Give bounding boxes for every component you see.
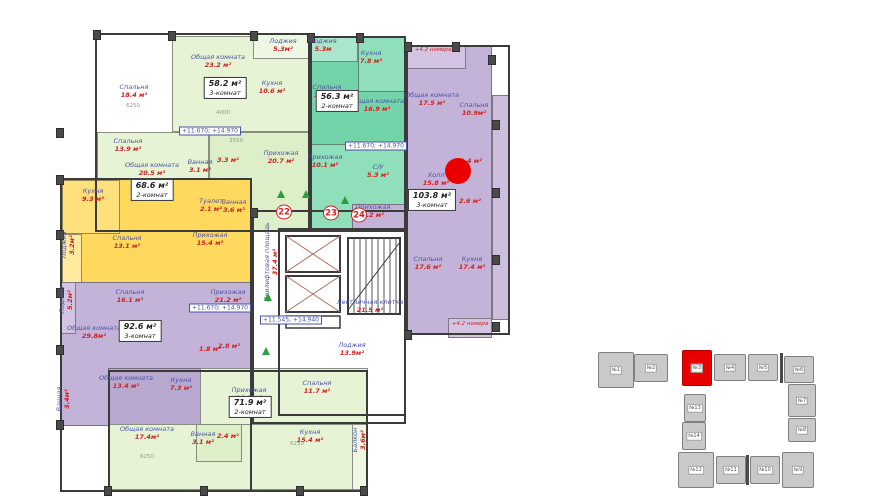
- apartment-area-badge: 68.6 м²2-комнат: [131, 179, 174, 201]
- dimension-label: 4000: [216, 110, 230, 116]
- room-area: 10.1 м²: [308, 162, 343, 170]
- selected-unit-dot: [445, 158, 471, 184]
- badge-area: 58.2 м²: [209, 79, 242, 89]
- elevation-badge: +11.670; +14.970: [345, 142, 407, 151]
- room-area: 15.4 м²: [297, 437, 323, 445]
- room-area: 5.2м²: [67, 286, 75, 313]
- expansion-joint: [780, 353, 783, 383]
- room-label: Прихожая15.4 м²: [193, 232, 228, 248]
- room-area: 10.6 м²: [259, 88, 285, 96]
- site-map-building[interactable]: №14: [682, 422, 706, 450]
- room-area: 3.1 м²: [191, 439, 216, 447]
- annotation-label: +4.2 номера: [452, 321, 488, 327]
- room-label: Лоджия5.2м²: [59, 286, 75, 313]
- site-map-building[interactable]: №6: [784, 356, 814, 383]
- room-area: 16.1 м²: [116, 297, 145, 305]
- room-area: 23.2 м²: [191, 62, 245, 70]
- entry-triangle-icon: [302, 190, 310, 198]
- room-area: 17.6 м²: [414, 264, 443, 272]
- entry-triangle-icon: [341, 196, 349, 204]
- wall-column: [452, 42, 460, 52]
- wall-column: [488, 55, 496, 65]
- expansion-joint: [746, 455, 749, 485]
- room-area: 20.5 м²: [125, 170, 179, 178]
- badge-area: 56.3 м²: [321, 92, 354, 102]
- room-label: Балкон3.6м²: [352, 428, 368, 453]
- wall-column: [104, 486, 112, 496]
- wall-column: [168, 31, 176, 41]
- entry-triangle-icon: [277, 190, 285, 198]
- building-number-label: №9: [792, 466, 804, 475]
- building-number-label: №5: [757, 363, 769, 372]
- room-area: 2.4 м²: [217, 433, 239, 441]
- site-map-building[interactable]: №2: [634, 354, 668, 382]
- apartment-area-badge: 56.3 м²2-комнат: [316, 90, 359, 112]
- apartment-area-badge: 103.8 м²3-комнат: [408, 189, 456, 211]
- room-label: Прилифтовая площадь37.4 м²: [264, 222, 280, 302]
- badge-rooms: 2-комнат: [136, 191, 169, 199]
- wall-column: [404, 42, 412, 52]
- site-map-building[interactable]: №12: [678, 452, 714, 488]
- room-label: Кухня15.4 м²: [297, 429, 323, 445]
- room-area: 15.4 м²: [193, 240, 228, 248]
- room-area: 5.3м²: [269, 46, 296, 54]
- wall-column: [356, 33, 364, 43]
- badge-area: 71.9 м²: [234, 398, 267, 408]
- badge-area: 103.8 м²: [413, 191, 451, 201]
- room-area: 2.6 м²: [459, 198, 481, 206]
- site-map-building[interactable]: №11: [716, 456, 746, 484]
- room-label: Общая комната29.8м²: [67, 325, 121, 341]
- room-label: Общая комната23.2 м²: [191, 54, 245, 70]
- building-number-label: №14: [686, 432, 702, 441]
- room-area: 13.4 м²: [99, 383, 153, 391]
- room-label: Лоджия13.9м²: [338, 342, 365, 358]
- room-label: Прихожая21.2 м²: [211, 289, 246, 305]
- site-map-building-selected[interactable]: №3: [682, 350, 712, 386]
- room-area: 17.4 м²: [459, 264, 485, 272]
- wall-column: [492, 322, 500, 332]
- site-map-building[interactable]: №8: [788, 418, 816, 442]
- room-label: Спальня13.9 м²: [114, 138, 143, 154]
- wall-column: [360, 486, 368, 496]
- room-label: 3.3 м²: [217, 157, 239, 165]
- room-area: 18.4 м²: [120, 92, 149, 100]
- room-label: Прихожая10.1 м²: [308, 154, 343, 170]
- room-label: С/У5.3 м²: [367, 164, 389, 180]
- badge-rooms: 2-комнат: [321, 102, 354, 110]
- room-label: Спальня16.1 м²: [116, 289, 145, 305]
- wall-column: [250, 208, 258, 218]
- room-label: Кухня9.3 м²: [82, 188, 104, 204]
- room-label: Прихожая20.7 м²: [264, 150, 299, 166]
- room-area: 7.8 м²: [360, 58, 382, 66]
- room-label: Спальня13.1 м²: [113, 235, 142, 251]
- room-area: 17.4м²: [120, 434, 174, 442]
- building-number-label: №1: [610, 366, 622, 375]
- room-area: 17.5 м²: [405, 100, 459, 108]
- room-label: 2.8 м²: [218, 343, 240, 351]
- annotation-label: +4.2 номера: [415, 47, 451, 53]
- room-area: 21.5 м²: [337, 307, 404, 315]
- wall-column: [56, 420, 64, 430]
- building-number-label: №2: [645, 364, 657, 373]
- room-area: 9.3 м²: [82, 196, 104, 204]
- badge-area: 92.6 м²: [124, 322, 157, 332]
- room-label: Ванная3.1 м²: [191, 431, 216, 447]
- wall-column: [56, 128, 64, 138]
- badge-rooms: 3-комнат: [124, 332, 157, 340]
- room-label: 2.4 м²: [217, 433, 239, 441]
- site-map-building[interactable]: №4: [714, 354, 746, 381]
- room-area: 3.6м²: [360, 428, 368, 453]
- unit-number-marker[interactable]: 22: [276, 205, 292, 220]
- building-number-label: №4: [724, 363, 736, 372]
- building-number-label: №11: [723, 466, 739, 475]
- site-map-building[interactable]: №9: [782, 452, 814, 488]
- room-area: 2.8 м²: [218, 343, 240, 351]
- elevation-badge: +11.670; +14.970: [189, 304, 251, 313]
- room-label: Лоджия5.3м: [309, 38, 336, 54]
- elevation-badge: +11.545; +14.940: [260, 316, 322, 325]
- building-number-label: №8: [796, 426, 808, 435]
- badge-rooms: 3-комнат: [209, 89, 242, 97]
- room-area: 13.1 м²: [113, 243, 142, 251]
- room-label: Общая комната13.4 м²: [99, 375, 153, 391]
- wall-column: [56, 175, 64, 185]
- room-label: Кухня7.8 м²: [360, 50, 382, 66]
- room-area: 37.4 м²: [272, 222, 280, 302]
- room-area: 2.1 м²: [199, 206, 223, 214]
- dimension-label: 6250: [140, 454, 154, 460]
- room-area: 29.8м²: [67, 333, 121, 341]
- room-label: Кухня7.3 м²: [170, 377, 192, 393]
- room-label: Общая комната20.5 м²: [125, 162, 179, 178]
- building-number-label: №10: [757, 466, 773, 475]
- room-label: Общая комната17.4м²: [120, 426, 174, 442]
- room-label: Общая комната17.5 м²: [405, 92, 459, 108]
- room-area: 13.9 м²: [114, 146, 143, 154]
- floor-plan-page: Спальня18.4 м²Общая комната23.2 м²Спальн…: [0, 0, 888, 499]
- apartment-area-badge: 58.2 м²3-комнат: [204, 77, 247, 99]
- room-area: 3.3 м²: [217, 157, 239, 165]
- entry-triangle-icon: [262, 347, 270, 355]
- wall-column: [250, 31, 258, 41]
- room-label: Ванная3.6 м²: [222, 199, 247, 215]
- room-label: Ванная3.1 м²: [188, 159, 213, 175]
- wall-column: [492, 255, 500, 265]
- room-label: Лестничная клетка21.5 м²: [337, 299, 404, 315]
- wall-column: [492, 120, 500, 130]
- room-area: 13.9м²: [338, 350, 365, 358]
- dimension-label: 6250: [126, 103, 140, 109]
- wall-column: [93, 30, 101, 40]
- badge-rooms: 3-комнат: [413, 201, 451, 209]
- room-label: 2.6 м²: [459, 198, 481, 206]
- room-label: Туалет2.1 м²: [199, 198, 223, 214]
- building-number-label: №6: [793, 365, 805, 374]
- dimension-label: 3550: [229, 138, 243, 144]
- wall-column: [492, 188, 500, 198]
- badge-area: 68.6 м²: [136, 181, 169, 191]
- room-label: Кухня10.6 м²: [259, 80, 285, 96]
- room-area: 3.2м²: [69, 231, 77, 258]
- room-label: Лоджия5.3м²: [269, 38, 296, 54]
- unit-number-marker[interactable]: 23: [323, 206, 339, 221]
- building-number-label: №3: [691, 364, 703, 373]
- room-area: 3.1 м²: [188, 167, 213, 175]
- site-map-building[interactable]: №1: [598, 352, 634, 388]
- room-label: Спальня10.9м²: [460, 102, 489, 118]
- room-area: 5.3м: [309, 46, 336, 54]
- wall-column: [56, 345, 64, 355]
- site-map-building[interactable]: №13: [684, 394, 706, 422]
- site-map-building[interactable]: №7: [788, 384, 816, 417]
- room-area: 5.3 м²: [367, 172, 389, 180]
- room-area: 20.7 м²: [264, 158, 299, 166]
- room-label: Спальня18.4 м²: [120, 84, 149, 100]
- badge-rooms: 2-комнат: [234, 408, 267, 416]
- apartment-area-badge: 71.9 м²2-комнат: [229, 396, 272, 418]
- wall-column: [296, 486, 304, 496]
- building-number-label: №7: [796, 396, 808, 405]
- room-area: 15.8 м²: [423, 180, 449, 188]
- elevator-shaft-icon: [286, 236, 340, 328]
- room-label: Кухня17.4 м²: [459, 256, 485, 272]
- site-map-building[interactable]: №5: [748, 354, 778, 381]
- room-area: 3.6 м²: [222, 207, 247, 215]
- site-map-building[interactable]: №10: [750, 456, 780, 484]
- building-number-label: №12: [688, 466, 704, 475]
- building-number-label: №13: [687, 404, 703, 413]
- room-label: Ванная3.4м²: [56, 387, 72, 412]
- elevation-badge: +11.670; +14.970: [179, 127, 241, 136]
- room-label: Спальня17.6 м²: [414, 256, 443, 272]
- unit-number-marker[interactable]: 24: [351, 208, 367, 223]
- room-area: 11.7 м²: [303, 388, 332, 396]
- room-label: Лоджия3.2м²: [61, 231, 77, 258]
- wall-column: [200, 486, 208, 496]
- room-area: 10.9м²: [460, 110, 489, 118]
- room-area: 7.3 м²: [170, 385, 192, 393]
- apartment-area-badge: 92.6 м²3-комнат: [119, 320, 162, 342]
- entry-triangle-icon: [264, 293, 272, 301]
- room-label: Спальня11.7 м²: [303, 380, 332, 396]
- room-area: 3.4м²: [64, 387, 72, 412]
